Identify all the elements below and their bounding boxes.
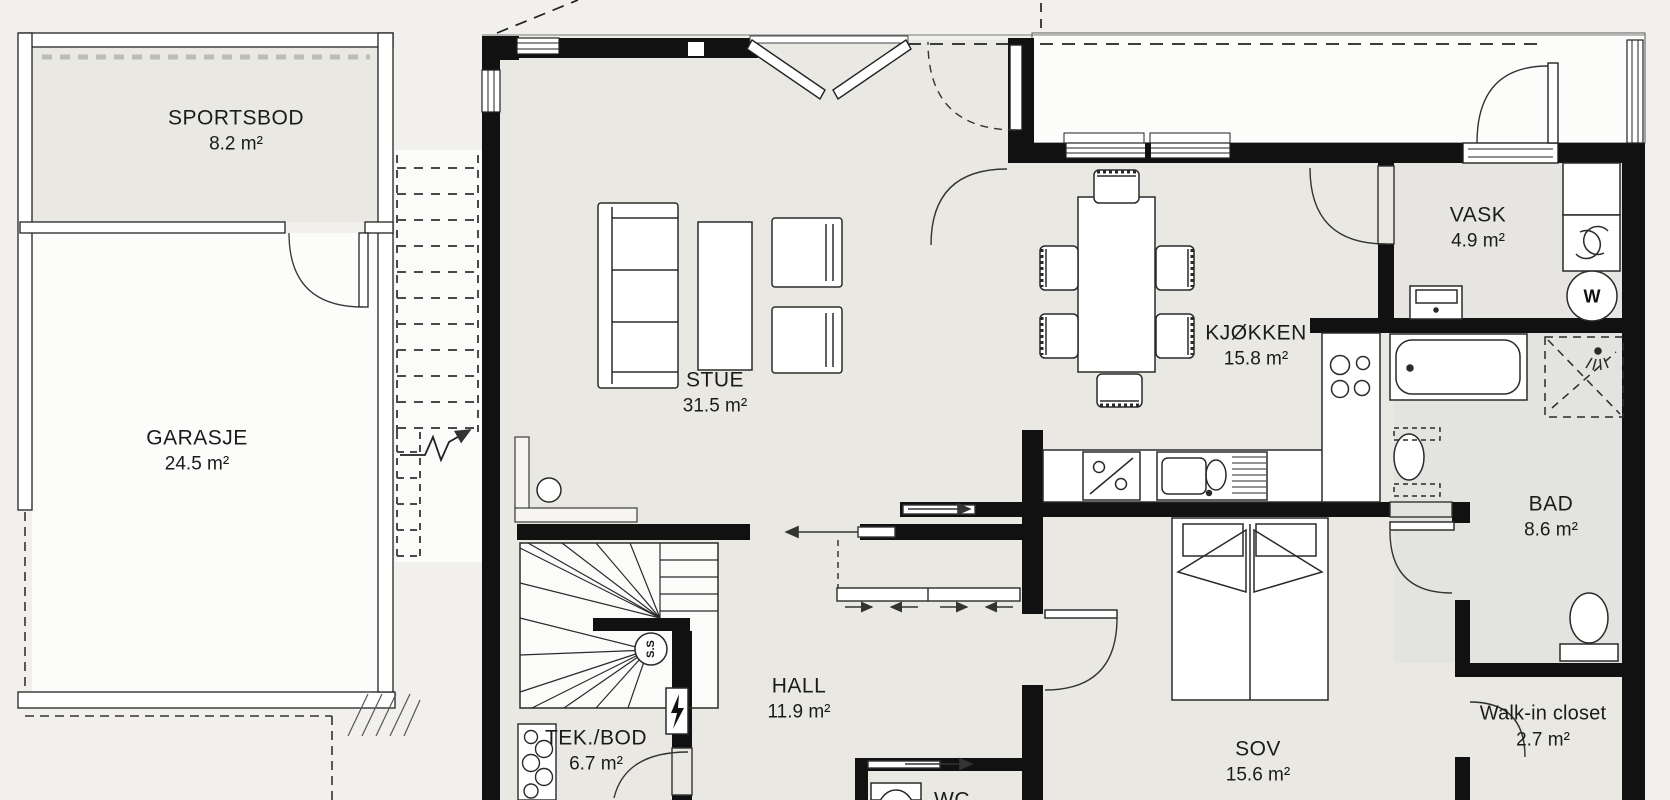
- tek-door-gap: [672, 748, 692, 795]
- coffee-table: [698, 222, 752, 370]
- bad-door-leaf: [1390, 522, 1454, 530]
- wall-vent: [688, 42, 704, 56]
- kitchen-sink: [1157, 452, 1267, 500]
- sov-door-leaf: [1045, 610, 1117, 618]
- bedroom-fixtures: [1172, 518, 1328, 700]
- dining-table: [1078, 197, 1155, 372]
- electrical-panel: [666, 688, 688, 734]
- sofa: [598, 203, 678, 388]
- vask-door-gap: [1378, 166, 1394, 244]
- vask-counter: [1563, 163, 1620, 215]
- vask-exterior-door-sill: [1463, 143, 1558, 163]
- dryer: [1563, 215, 1620, 271]
- folding-door-sill: [750, 36, 908, 43]
- stair-marker-symbol: S.S: [645, 640, 657, 658]
- floor-plan: SPORTSBOD 8.2 m² GARASJE 24.5 m² STUE 31…: [0, 0, 1670, 800]
- kitchen-counter-column: [1322, 333, 1380, 502]
- tek-fixtures: [518, 724, 556, 800]
- bad-door-gap: [1390, 502, 1452, 517]
- bathtub: [1390, 334, 1527, 400]
- wood-stove: [537, 478, 561, 502]
- dishwasher: [1083, 452, 1140, 500]
- armchair: [772, 218, 842, 287]
- stue-terrace-door-leaf: [1010, 45, 1022, 130]
- pillow: [1256, 524, 1316, 556]
- wc-fixtures: [871, 783, 921, 800]
- armchair: [772, 307, 842, 373]
- top-left-window: [517, 38, 559, 54]
- sportsbod-door-leaf: [359, 233, 368, 307]
- washer-symbol: W: [1584, 287, 1601, 308]
- vask-sink-cabinet: [1410, 286, 1462, 319]
- floor-plan-drawing: [0, 0, 1670, 800]
- right-wall-window: [1627, 40, 1643, 143]
- stue-pocket-door-slot: [858, 527, 895, 537]
- left-wall-window: [482, 70, 500, 112]
- vask-exterior-door-leaf: [1548, 63, 1558, 143]
